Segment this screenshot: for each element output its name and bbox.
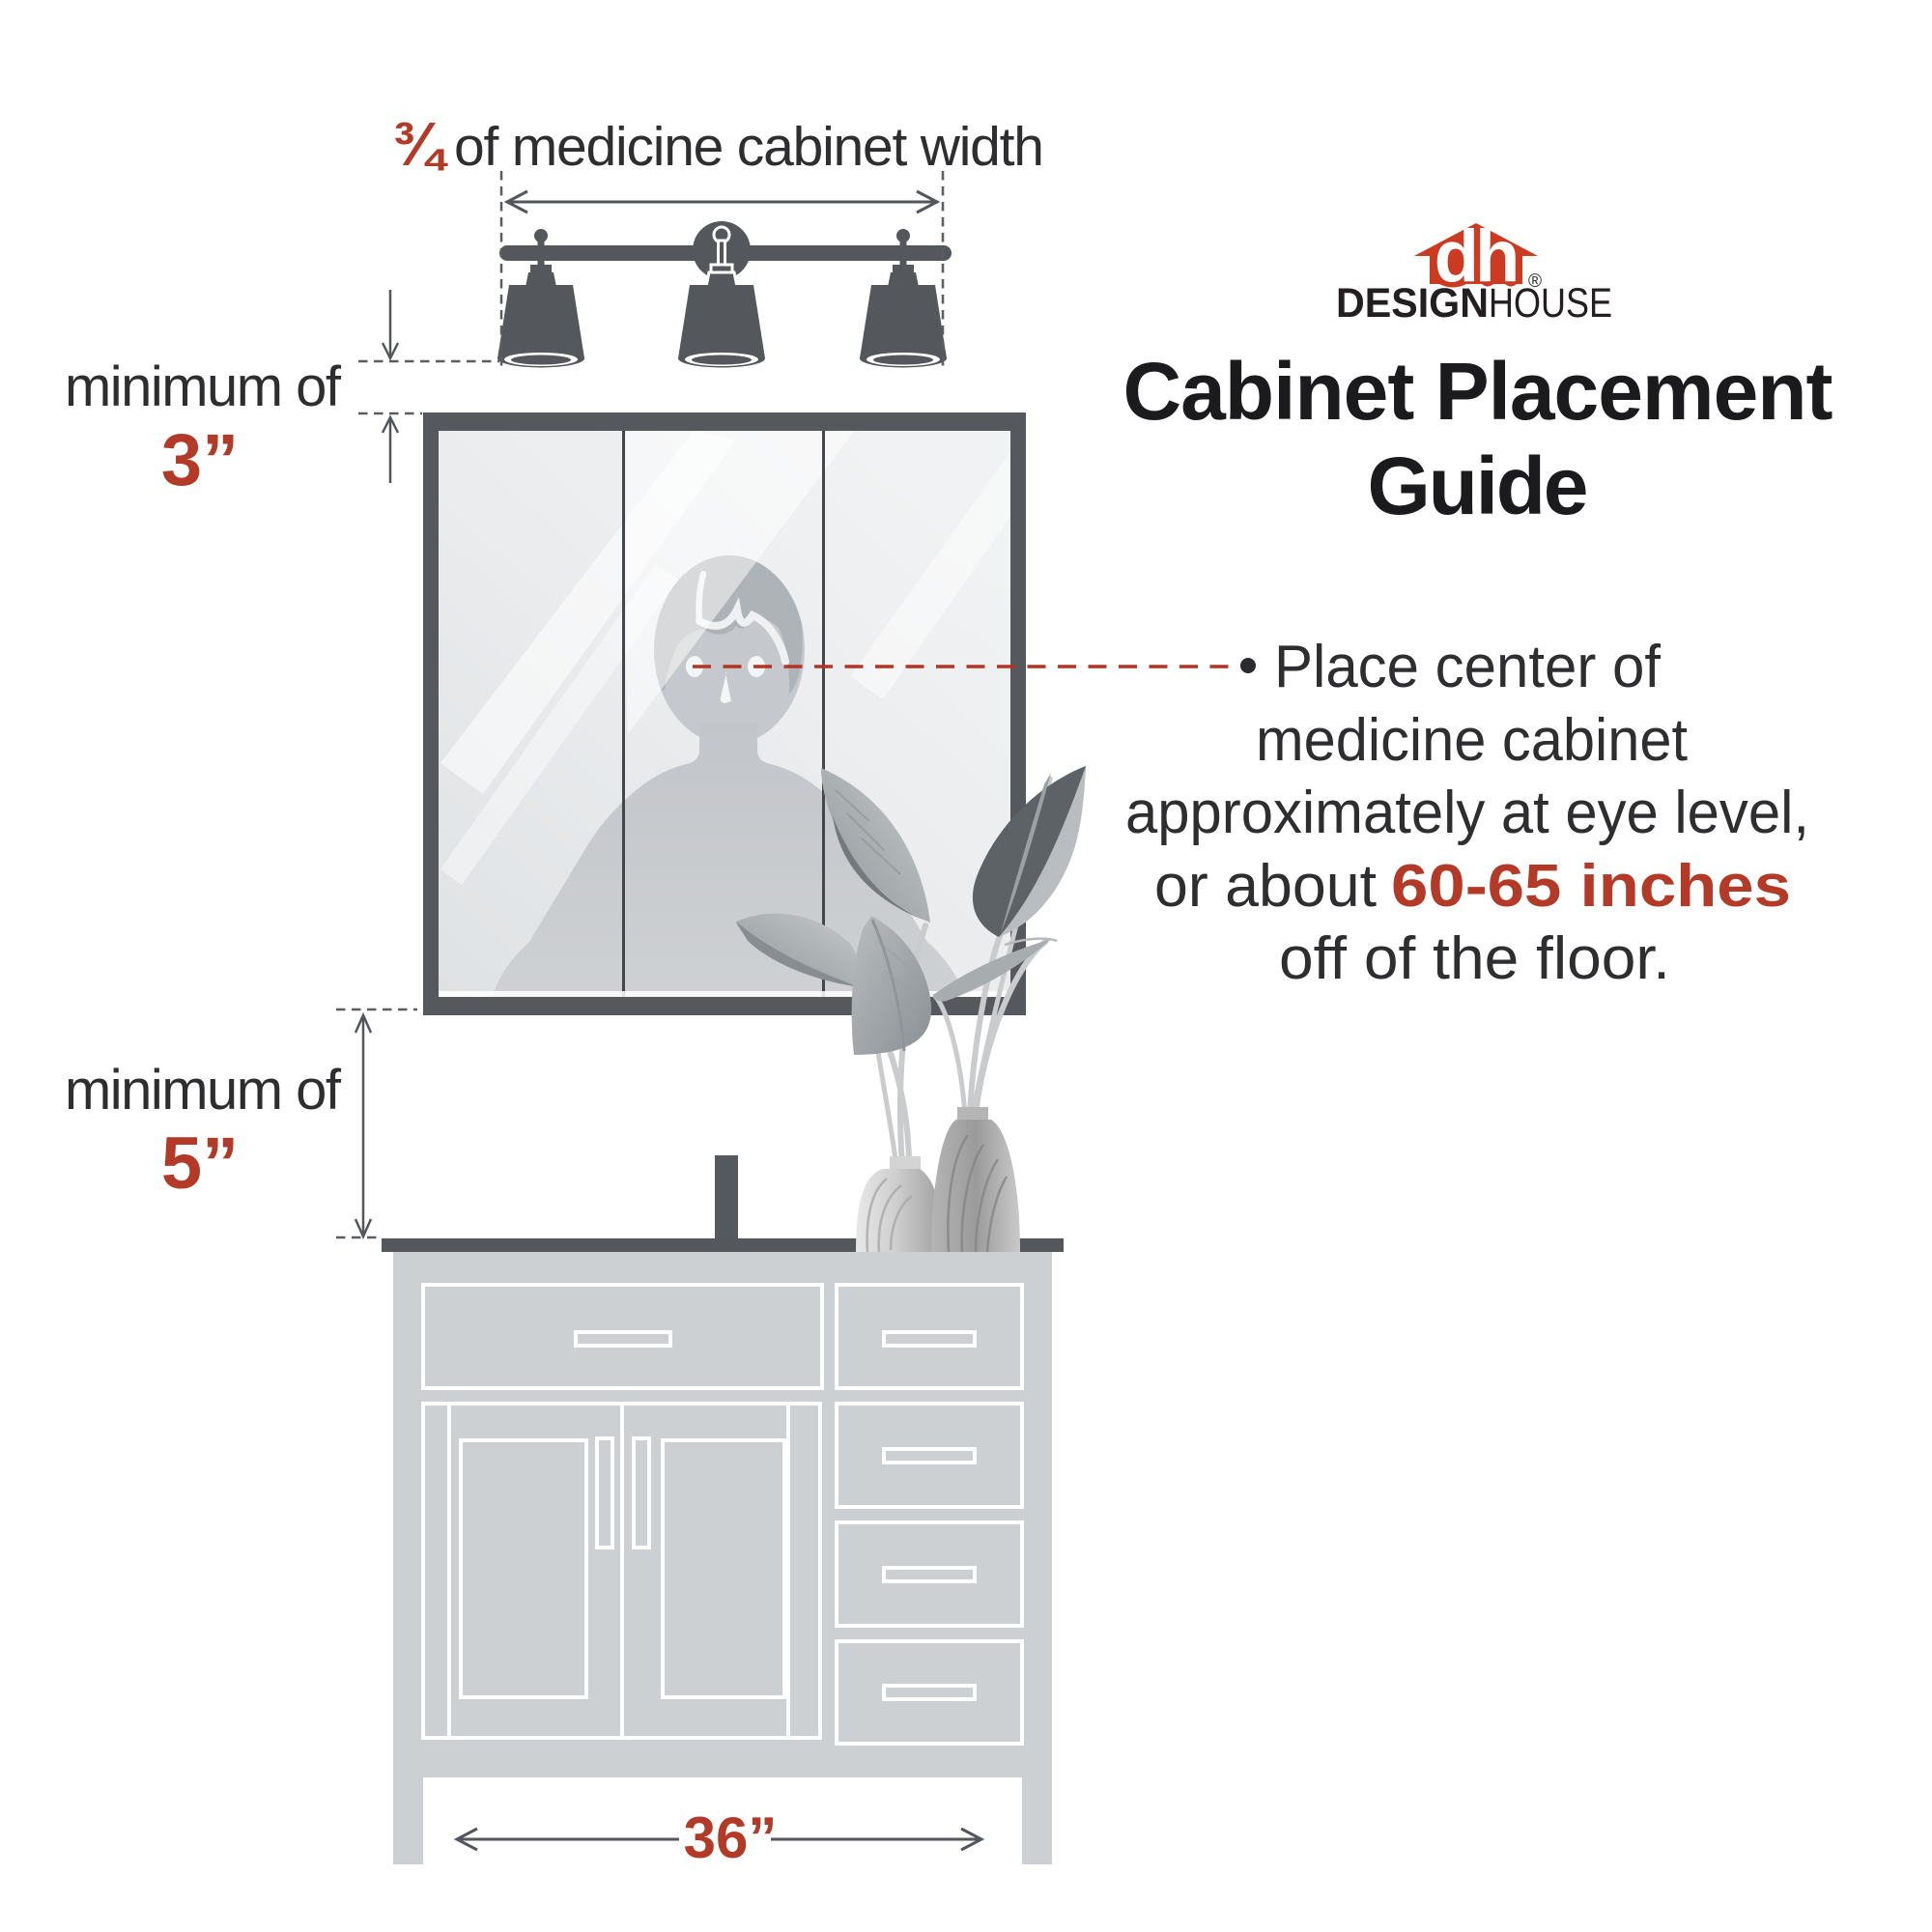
svg-text:Cabinet Placement: Cabinet Placement bbox=[1123, 346, 1833, 437]
svg-text:off of the floor.: off of the floor. bbox=[1279, 925, 1670, 992]
svg-text:minimum of: minimum of bbox=[65, 355, 342, 418]
svg-text:DESIGN: DESIGN bbox=[1336, 280, 1489, 327]
svg-text:¾: ¾ bbox=[392, 109, 448, 179]
svg-text:36”: 36” bbox=[684, 1805, 778, 1870]
svg-text:60-65 inches: 60-65 inches bbox=[1391, 853, 1791, 920]
svg-text:medicine cabinet: medicine cabinet bbox=[1256, 707, 1688, 774]
svg-text:or about: or about bbox=[1154, 853, 1377, 920]
svg-text:minimum of: minimum of bbox=[65, 1059, 342, 1122]
svg-text:5”: 5” bbox=[161, 1122, 239, 1205]
svg-text:Place center of: Place center of bbox=[1274, 634, 1662, 700]
svg-text:HOUSE: HOUSE bbox=[1489, 280, 1612, 327]
svg-text:of medicine cabinet width: of medicine cabinet width bbox=[454, 116, 1044, 178]
svg-text:Guide: Guide bbox=[1368, 440, 1589, 531]
svg-text:approximately at eye level,: approximately at eye level, bbox=[1125, 780, 1809, 846]
svg-text:3”: 3” bbox=[161, 419, 239, 501]
